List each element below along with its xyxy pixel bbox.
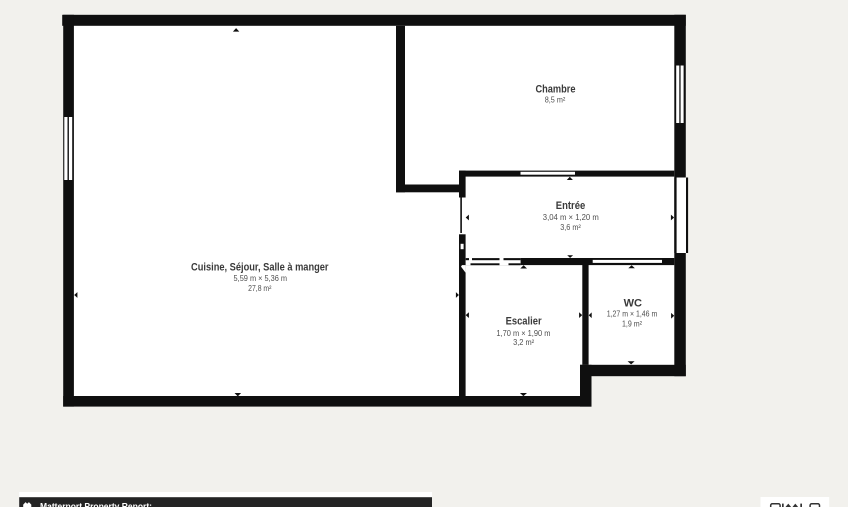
svg-text:1,27 m × 1,46 m: 1,27 m × 1,46 m bbox=[607, 310, 658, 319]
svg-text:Cuisine, Séjour, Salle à mange: Cuisine, Séjour, Salle à manger bbox=[191, 262, 329, 274]
svg-text:Chambre: Chambre bbox=[536, 84, 576, 96]
svg-text:3,04 m × 1,20 m: 3,04 m × 1,20 m bbox=[543, 213, 599, 222]
svg-text:8,5 m²: 8,5 m² bbox=[545, 95, 566, 104]
svg-text:Matterport Property Report:: Matterport Property Report: bbox=[40, 501, 152, 507]
svg-text:WC: WC bbox=[624, 298, 642, 310]
svg-text:5,59 m × 5,36 m: 5,59 m × 5,36 m bbox=[234, 274, 288, 283]
svg-text:1,70 m × 1,90 m: 1,70 m × 1,90 m bbox=[496, 329, 550, 338]
svg-text:1,9 m²: 1,9 m² bbox=[622, 319, 642, 328]
svg-text:Escalier: Escalier bbox=[506, 315, 543, 327]
svg-text:3,2 m²: 3,2 m² bbox=[513, 338, 534, 347]
svg-text:3,6 m²: 3,6 m² bbox=[560, 223, 581, 232]
svg-text:Entrée: Entrée bbox=[556, 200, 586, 212]
svg-text:27,8 m²: 27,8 m² bbox=[248, 284, 272, 293]
